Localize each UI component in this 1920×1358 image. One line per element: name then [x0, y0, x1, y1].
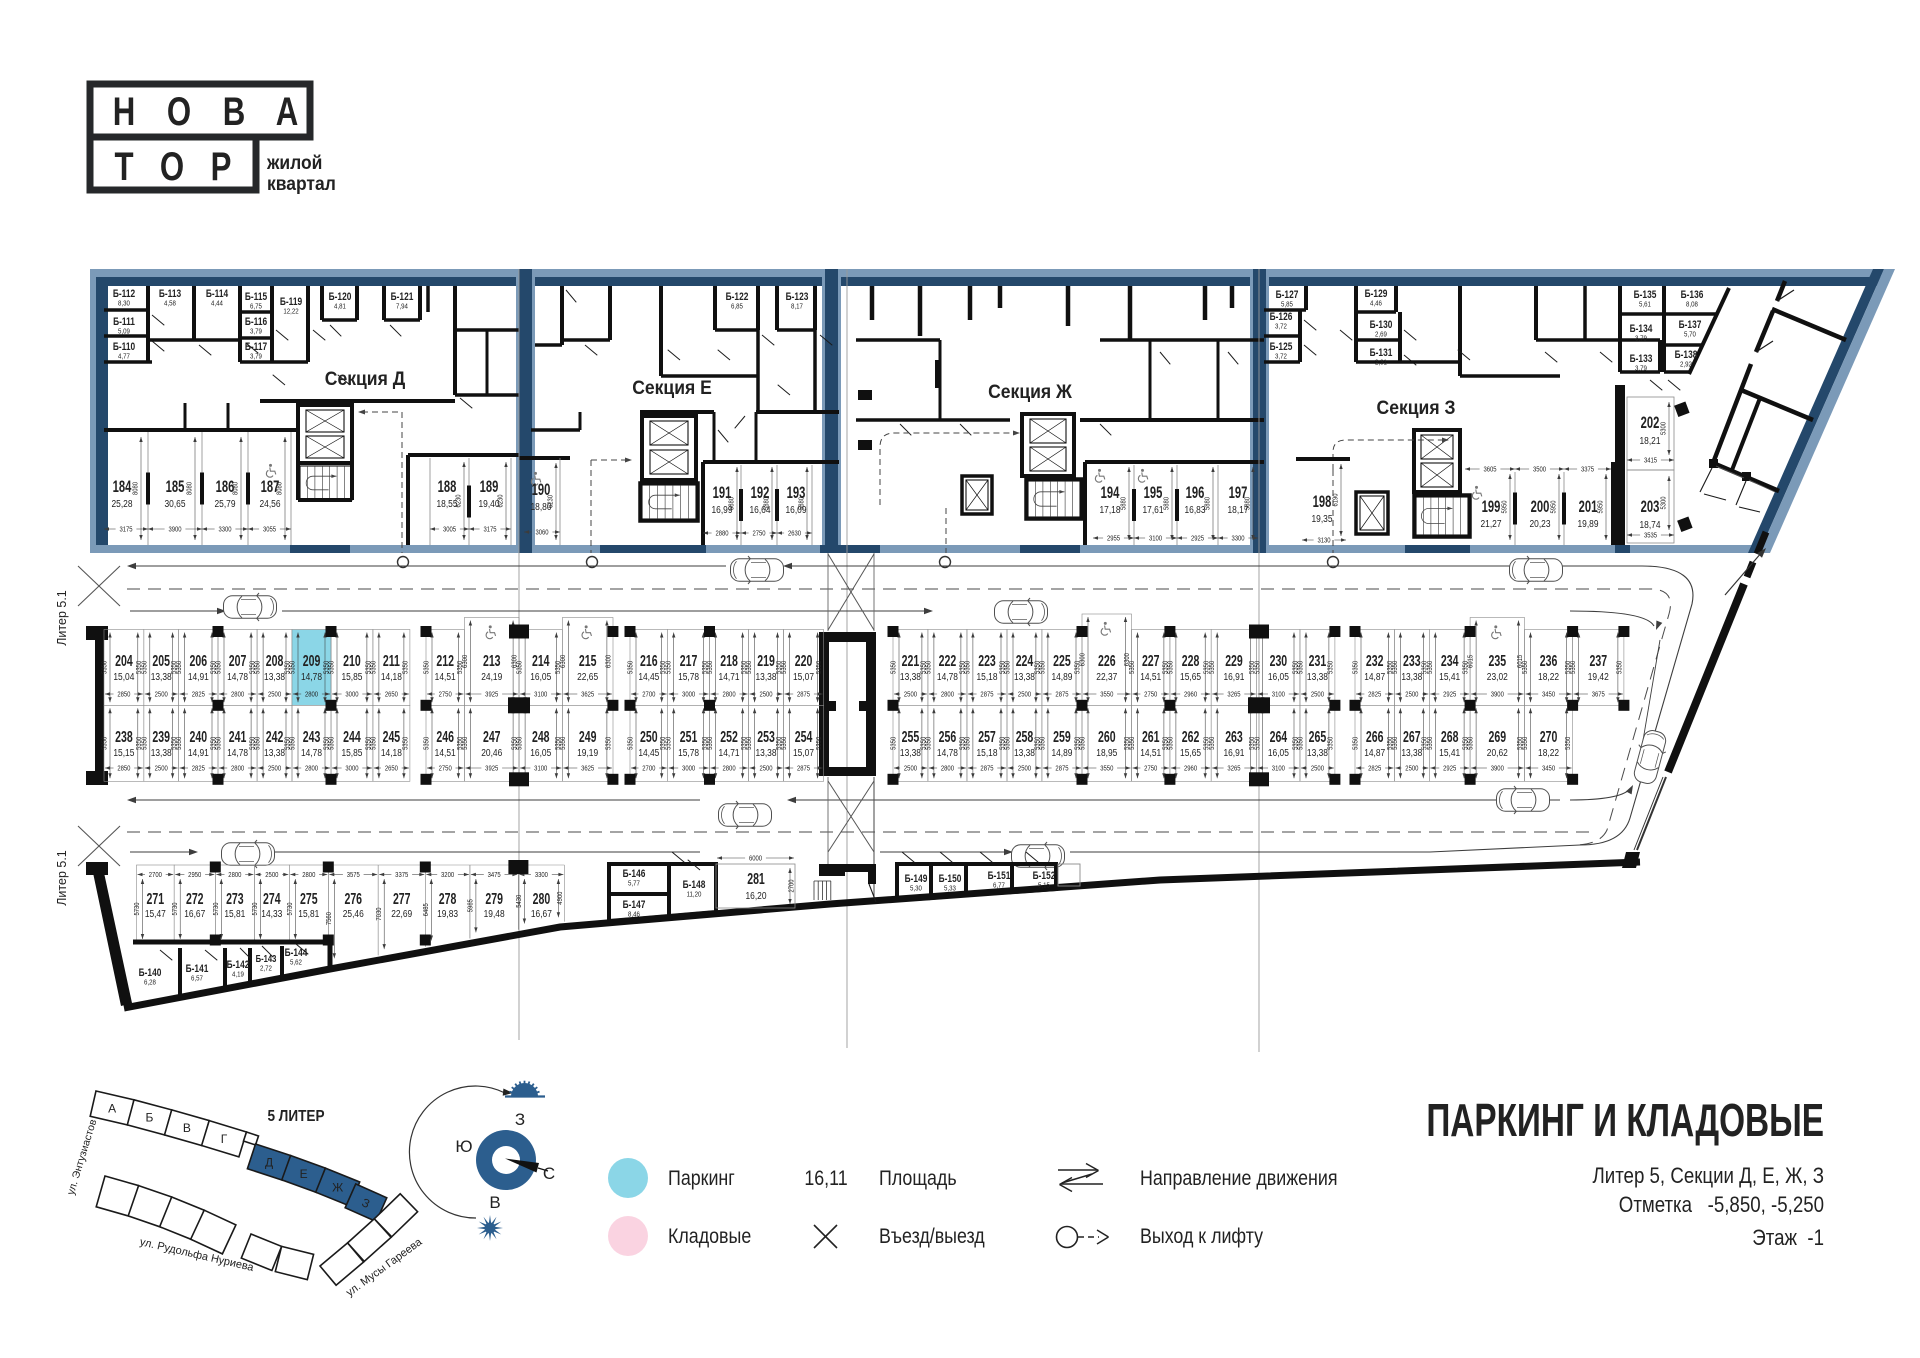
- svg-text:5350: 5350: [328, 661, 336, 674]
- svg-text:8080: 8080: [132, 482, 140, 495]
- svg-text:Ж: Ж: [332, 1180, 343, 1194]
- svg-text:2650: 2650: [385, 765, 398, 773]
- svg-text:254: 254: [795, 728, 813, 746]
- svg-text:Кладовые: Кладовые: [668, 1225, 751, 1249]
- svg-text:5350: 5350: [1522, 661, 1530, 674]
- svg-text:13,38: 13,38: [264, 671, 285, 683]
- svg-text:3550: 3550: [1100, 691, 1113, 699]
- svg-text:239: 239: [152, 728, 170, 746]
- svg-text:16,67: 16,67: [531, 908, 552, 920]
- svg-text:21,27: 21,27: [1480, 518, 1501, 530]
- svg-text:15,07: 15,07: [793, 671, 814, 683]
- svg-text:8,46: 8,46: [628, 911, 640, 919]
- svg-text:6,28: 6,28: [144, 979, 156, 987]
- svg-text:5350: 5350: [141, 736, 149, 749]
- svg-text:Б-114: Б-114: [206, 288, 229, 300]
- svg-text:3675: 3675: [1592, 691, 1605, 699]
- svg-text:3100: 3100: [1272, 765, 1285, 773]
- svg-text:16,91: 16,91: [1223, 747, 1244, 759]
- svg-text:189: 189: [480, 478, 499, 497]
- svg-text:14,89: 14,89: [1051, 671, 1072, 683]
- svg-text:5350: 5350: [254, 736, 262, 749]
- svg-text:240: 240: [190, 728, 208, 746]
- svg-text:228: 228: [1182, 652, 1200, 670]
- svg-text:194: 194: [1101, 484, 1120, 503]
- svg-text:248: 248: [532, 728, 550, 746]
- svg-text:256: 256: [939, 728, 957, 746]
- svg-text:22,65: 22,65: [577, 671, 598, 683]
- svg-text:2875: 2875: [797, 765, 810, 773]
- svg-text:15,85: 15,85: [341, 747, 362, 759]
- svg-text:16,83: 16,83: [1184, 504, 1205, 516]
- svg-text:Площадь: Площадь: [879, 1167, 957, 1191]
- svg-text:2955: 2955: [1107, 535, 1120, 543]
- svg-text:16,11: 16,11: [804, 1167, 847, 1191]
- svg-text:Р: Р: [211, 144, 232, 189]
- svg-text:Литер 5.1: Литер 5.1: [55, 590, 69, 646]
- svg-text:Б-131: Б-131: [1370, 347, 1393, 359]
- svg-text:Б-150: Б-150: [939, 873, 962, 885]
- svg-text:14,89: 14,89: [1051, 747, 1072, 759]
- svg-text:3475: 3475: [488, 872, 501, 880]
- svg-text:Д: Д: [265, 1155, 273, 1169]
- svg-text:5350: 5350: [890, 736, 898, 749]
- svg-text:15,07: 15,07: [793, 747, 814, 759]
- svg-text:208: 208: [266, 652, 284, 670]
- svg-text:19,35: 19,35: [1311, 513, 1332, 525]
- svg-text:2,69: 2,69: [1375, 331, 1387, 339]
- svg-text:Т: Т: [114, 144, 133, 189]
- svg-text:195: 195: [1144, 484, 1163, 503]
- svg-text:223: 223: [978, 652, 996, 670]
- svg-text:5,61: 5,61: [1639, 301, 1651, 309]
- svg-text:12,22: 12,22: [283, 308, 299, 316]
- svg-text:246: 246: [436, 728, 454, 746]
- svg-text:279: 279: [485, 890, 503, 908]
- svg-text:220: 220: [795, 652, 813, 670]
- svg-text:243: 243: [303, 728, 321, 746]
- svg-text:14,78: 14,78: [937, 671, 958, 683]
- svg-text:2500: 2500: [1311, 691, 1324, 699]
- svg-text:14,78: 14,78: [301, 747, 322, 759]
- svg-text:274: 274: [263, 890, 281, 908]
- svg-text:5350: 5350: [665, 736, 673, 749]
- svg-text:2875: 2875: [1055, 691, 1068, 699]
- svg-text:14,91: 14,91: [188, 747, 209, 759]
- svg-text:14,18: 14,18: [381, 671, 402, 683]
- svg-text:2960: 2960: [1184, 691, 1197, 699]
- svg-text:Б-142: Б-142: [227, 959, 250, 971]
- svg-text:6000: 6000: [749, 855, 762, 863]
- svg-text:5880: 5880: [798, 497, 806, 510]
- svg-text:241: 241: [229, 728, 247, 746]
- svg-text:247: 247: [483, 728, 501, 746]
- svg-text:216: 216: [640, 652, 658, 670]
- svg-text:Б-151: Б-151: [988, 870, 1011, 882]
- svg-text:15,41: 15,41: [1439, 747, 1460, 759]
- svg-text:14,51: 14,51: [1140, 671, 1161, 683]
- svg-text:5350: 5350: [1297, 736, 1305, 749]
- svg-text:2925: 2925: [1443, 691, 1456, 699]
- svg-text:5350: 5350: [1254, 661, 1262, 674]
- svg-text:13,38: 13,38: [1014, 747, 1035, 759]
- svg-text:Отметка -5,850, -5,250: Отметка -5,850, -5,250: [1619, 1194, 1824, 1218]
- svg-text:5350: 5350: [605, 736, 613, 749]
- svg-text:5350: 5350: [289, 736, 297, 749]
- svg-text:З: З: [515, 1110, 525, 1129]
- svg-text:6300: 6300: [559, 655, 567, 668]
- svg-text:227: 227: [1142, 652, 1160, 670]
- svg-text:13,38: 13,38: [900, 671, 921, 683]
- svg-text:Б-119: Б-119: [280, 296, 303, 308]
- svg-text:Б-140: Б-140: [139, 967, 162, 979]
- svg-text:13,38: 13,38: [264, 747, 285, 759]
- svg-text:6300: 6300: [1079, 653, 1087, 666]
- svg-text:2750: 2750: [439, 691, 452, 699]
- svg-text:5350: 5350: [1039, 661, 1047, 674]
- svg-text:6230: 6230: [547, 495, 555, 508]
- svg-text:5950: 5950: [1597, 500, 1605, 513]
- svg-text:Е: Е: [300, 1167, 308, 1181]
- svg-text:5730: 5730: [134, 902, 142, 915]
- svg-text:232: 232: [1366, 652, 1384, 670]
- svg-text:3,72: 3,72: [1275, 323, 1287, 331]
- svg-text:15,18: 15,18: [976, 671, 997, 683]
- svg-text:200: 200: [1531, 498, 1550, 517]
- svg-text:2800: 2800: [941, 691, 954, 699]
- svg-text:5880: 5880: [728, 497, 736, 510]
- svg-text:Б-116: Б-116: [245, 316, 268, 328]
- svg-text:15,81: 15,81: [224, 908, 245, 920]
- svg-text:236: 236: [1540, 652, 1558, 670]
- svg-text:5730: 5730: [212, 902, 220, 915]
- svg-text:188: 188: [438, 478, 457, 497]
- svg-text:4,46: 4,46: [1370, 300, 1382, 308]
- svg-text:Б-120: Б-120: [329, 291, 352, 303]
- svg-text:4,44: 4,44: [211, 300, 223, 308]
- svg-text:2700: 2700: [788, 879, 796, 892]
- svg-text:230: 230: [1270, 652, 1288, 670]
- svg-text:А: А: [276, 89, 299, 134]
- svg-text:5350: 5350: [1167, 661, 1175, 674]
- svg-text:ПАРКИНГ И КЛАДОВЫЕ: ПАРКИНГ И КЛАДОВЫЕ: [1426, 1095, 1824, 1147]
- svg-text:14,33: 14,33: [261, 908, 282, 920]
- svg-text:238: 238: [115, 728, 133, 746]
- svg-text:13,38: 13,38: [756, 747, 777, 759]
- svg-text:Б-130: Б-130: [1370, 319, 1393, 331]
- svg-text:257: 257: [978, 728, 996, 746]
- svg-text:11,20: 11,20: [687, 891, 702, 899]
- svg-text:Б-138: Б-138: [1675, 349, 1698, 361]
- svg-text:2925: 2925: [1191, 535, 1204, 543]
- svg-text:8,30: 8,30: [118, 300, 130, 308]
- svg-text:Б-143: Б-143: [256, 953, 277, 964]
- svg-text:252: 252: [720, 728, 738, 746]
- svg-text:18,22: 18,22: [1538, 671, 1559, 683]
- svg-text:5350: 5350: [1565, 736, 1573, 749]
- svg-text:16,20: 16,20: [745, 890, 766, 902]
- svg-text:2800: 2800: [302, 872, 315, 880]
- svg-text:5350: 5350: [423, 661, 431, 674]
- svg-text:2500: 2500: [904, 691, 917, 699]
- svg-text:С: С: [543, 1164, 555, 1183]
- svg-text:5350: 5350: [215, 736, 223, 749]
- svg-text:5300: 5300: [1660, 496, 1668, 509]
- svg-text:2750: 2750: [752, 530, 765, 538]
- svg-text:Секция Д: Секция Д: [325, 367, 405, 389]
- svg-text:5350: 5350: [402, 661, 410, 674]
- svg-text:265: 265: [1309, 728, 1327, 746]
- svg-text:2500: 2500: [265, 872, 278, 880]
- svg-text:7560: 7560: [325, 912, 333, 925]
- svg-text:3375: 3375: [395, 872, 408, 880]
- svg-text:244: 244: [343, 728, 361, 746]
- svg-text:3000: 3000: [345, 691, 358, 699]
- svg-text:3000: 3000: [682, 691, 695, 699]
- svg-text:5350: 5350: [1167, 736, 1175, 749]
- svg-text:5300: 5300: [1660, 422, 1668, 435]
- svg-text:15,81: 15,81: [298, 908, 319, 920]
- svg-text:5350: 5350: [1522, 736, 1530, 749]
- svg-text:5350: 5350: [1352, 661, 1360, 674]
- svg-text:2800: 2800: [305, 691, 318, 699]
- svg-text:15,41: 15,41: [1439, 671, 1460, 683]
- svg-text:Б-122: Б-122: [726, 291, 749, 303]
- svg-text:15,15: 15,15: [113, 747, 134, 759]
- svg-text:5350: 5350: [254, 661, 262, 674]
- svg-text:5350: 5350: [1004, 736, 1012, 749]
- svg-text:226: 226: [1098, 652, 1116, 670]
- svg-text:Б-133: Б-133: [1630, 353, 1653, 365]
- svg-text:3130: 3130: [1317, 537, 1330, 545]
- svg-text:15,65: 15,65: [1180, 747, 1201, 759]
- svg-text:237: 237: [1589, 652, 1607, 670]
- svg-text:6,85: 6,85: [731, 303, 743, 311]
- svg-text:5350: 5350: [423, 736, 431, 749]
- svg-text:2850: 2850: [117, 691, 130, 699]
- svg-text:2700: 2700: [149, 872, 162, 880]
- svg-text:5350: 5350: [1208, 736, 1216, 749]
- svg-text:5350: 5350: [1079, 736, 1087, 749]
- svg-text:Секция Ж: Секция Ж: [988, 380, 1072, 402]
- svg-text:13,38: 13,38: [1307, 747, 1328, 759]
- svg-text:5730: 5730: [286, 902, 294, 915]
- svg-text:211: 211: [383, 652, 400, 670]
- svg-text:14,45: 14,45: [638, 747, 659, 759]
- svg-text:5950: 5950: [1550, 500, 1558, 513]
- svg-text:5350: 5350: [1129, 736, 1137, 749]
- svg-text:3,72: 3,72: [1275, 353, 1287, 361]
- svg-text:199: 199: [1482, 498, 1501, 517]
- svg-text:2875: 2875: [1055, 765, 1068, 773]
- svg-text:2650: 2650: [385, 691, 398, 699]
- svg-text:13,38: 13,38: [1014, 671, 1035, 683]
- svg-text:2800: 2800: [722, 765, 735, 773]
- svg-text:5350: 5350: [964, 736, 972, 749]
- svg-text:271: 271: [147, 890, 165, 908]
- svg-text:209: 209: [303, 652, 321, 670]
- svg-text:8,08: 8,08: [1686, 301, 1698, 309]
- svg-text:198: 198: [1313, 493, 1332, 512]
- svg-text:Б-137: Б-137: [1679, 319, 1702, 331]
- svg-text:13,38: 13,38: [756, 671, 777, 683]
- svg-text:213: 213: [483, 652, 501, 670]
- svg-text:5350: 5350: [815, 661, 823, 674]
- svg-text:Б-152: Б-152: [1033, 870, 1056, 882]
- svg-text:5,33: 5,33: [944, 885, 956, 893]
- svg-text:5350: 5350: [1392, 736, 1400, 749]
- svg-text:Въезд/выезд: Въезд/выезд: [879, 1225, 985, 1249]
- svg-text:5350: 5350: [176, 661, 184, 674]
- svg-text:14,78: 14,78: [227, 671, 248, 683]
- svg-text:19,19: 19,19: [577, 747, 598, 759]
- svg-text:Г: Г: [221, 1132, 228, 1146]
- svg-text:5350: 5350: [1392, 661, 1400, 674]
- svg-text:5350: 5350: [289, 661, 297, 674]
- svg-text:24,19: 24,19: [481, 671, 502, 683]
- svg-text:2750: 2750: [439, 765, 452, 773]
- svg-text:Б-141: Б-141: [186, 963, 209, 975]
- svg-text:Б-136: Б-136: [1681, 289, 1704, 301]
- svg-text:184: 184: [113, 478, 132, 497]
- svg-text:6230: 6230: [455, 494, 463, 507]
- svg-text:20,46: 20,46: [481, 747, 502, 759]
- svg-text:5350: 5350: [176, 736, 184, 749]
- svg-text:Б-115: Б-115: [245, 291, 268, 303]
- svg-text:19,89: 19,89: [1577, 518, 1598, 530]
- svg-text:242: 242: [266, 728, 284, 746]
- svg-text:2700: 2700: [642, 691, 655, 699]
- svg-text:4900: 4900: [556, 891, 564, 904]
- svg-text:В: В: [489, 1193, 500, 1212]
- svg-text:5350: 5350: [1352, 736, 1360, 749]
- svg-text:18,22: 18,22: [1538, 747, 1559, 759]
- svg-text:5880: 5880: [1163, 497, 1171, 510]
- svg-text:202: 202: [1641, 414, 1660, 433]
- svg-text:5350: 5350: [707, 661, 715, 674]
- svg-text:23,02: 23,02: [1487, 671, 1508, 683]
- svg-text:260: 260: [1098, 728, 1116, 746]
- svg-text:18,21: 18,21: [1639, 435, 1660, 447]
- svg-text:6,77: 6,77: [993, 882, 1005, 890]
- svg-text:2850: 2850: [117, 765, 130, 773]
- svg-text:2825: 2825: [1368, 765, 1381, 773]
- svg-text:2800: 2800: [722, 691, 735, 699]
- svg-text:15,78: 15,78: [678, 747, 699, 759]
- svg-text:Б-148: Б-148: [683, 879, 706, 891]
- svg-text:16,05: 16,05: [1268, 671, 1289, 683]
- svg-text:2500: 2500: [1018, 765, 1031, 773]
- svg-text:269: 269: [1488, 728, 1506, 746]
- svg-text:272: 272: [186, 890, 204, 908]
- svg-text:5950: 5950: [1501, 500, 1509, 513]
- svg-text:14,51: 14,51: [1140, 747, 1161, 759]
- svg-text:15,47: 15,47: [145, 908, 166, 920]
- svg-text:18,95: 18,95: [1096, 747, 1117, 759]
- svg-text:3265: 3265: [1227, 691, 1240, 699]
- svg-text:5350: 5350: [1570, 661, 1578, 674]
- svg-text:Секция З: Секция З: [1377, 396, 1456, 418]
- svg-text:20,62: 20,62: [1487, 747, 1508, 759]
- svg-text:3300: 3300: [218, 526, 231, 534]
- svg-text:2750: 2750: [1144, 765, 1157, 773]
- svg-text:14,71: 14,71: [719, 747, 740, 759]
- svg-text:20,23: 20,23: [1529, 518, 1550, 530]
- svg-text:3900: 3900: [1491, 765, 1504, 773]
- svg-text:Б-126: Б-126: [1270, 311, 1293, 323]
- svg-text:205: 205: [152, 652, 170, 670]
- svg-text:3005: 3005: [443, 526, 456, 534]
- svg-text:3,79: 3,79: [1635, 365, 1647, 373]
- svg-text:Б-135: Б-135: [1634, 289, 1657, 301]
- svg-text:3100: 3100: [1149, 535, 1162, 543]
- svg-text:250: 250: [640, 728, 658, 746]
- svg-text:14,91: 14,91: [188, 671, 209, 683]
- svg-text:8080: 8080: [232, 482, 240, 495]
- svg-text:Н: Н: [113, 89, 136, 134]
- svg-text:5350: 5350: [627, 661, 635, 674]
- svg-text:13,38: 13,38: [1401, 671, 1422, 683]
- svg-text:231: 231: [1309, 652, 1327, 670]
- svg-text:6300: 6300: [461, 655, 469, 668]
- svg-text:2950: 2950: [188, 872, 201, 880]
- svg-text:13,38: 13,38: [151, 671, 172, 683]
- svg-text:222: 222: [939, 652, 957, 670]
- svg-text:14,78: 14,78: [227, 747, 248, 759]
- svg-text:19,48: 19,48: [484, 908, 505, 920]
- svg-text:5350: 5350: [559, 736, 567, 749]
- svg-text:5350: 5350: [215, 661, 223, 674]
- svg-text:3550: 3550: [1100, 765, 1113, 773]
- svg-text:Б-112: Б-112: [113, 288, 136, 300]
- svg-text:Этаж -1: Этаж -1: [1752, 1227, 1824, 1251]
- svg-text:2500: 2500: [155, 765, 168, 773]
- svg-text:16,05: 16,05: [1268, 747, 1289, 759]
- svg-text:5350: 5350: [890, 661, 898, 674]
- svg-text:3625: 3625: [581, 691, 594, 699]
- svg-text:281: 281: [747, 870, 765, 888]
- svg-text:5350: 5350: [1254, 736, 1262, 749]
- svg-text:5985: 5985: [467, 899, 475, 912]
- svg-text:О: О: [160, 144, 184, 189]
- svg-text:4,19: 4,19: [232, 971, 244, 979]
- svg-text:14,71: 14,71: [719, 671, 740, 683]
- svg-text:Б-111: Б-111: [113, 316, 135, 328]
- svg-text:Литер 5, Секции Д, Е, Ж, З: Литер 5, Секции Д, Е, Ж, З: [1593, 1165, 1824, 1189]
- svg-text:3500: 3500: [1533, 466, 1546, 474]
- svg-text:266: 266: [1366, 728, 1384, 746]
- svg-text:3925: 3925: [485, 765, 498, 773]
- svg-text:2925: 2925: [1443, 765, 1456, 773]
- svg-text:О: О: [167, 89, 191, 134]
- svg-text:3575: 3575: [347, 872, 360, 880]
- svg-text:5430: 5430: [516, 894, 524, 907]
- svg-text:255: 255: [902, 728, 920, 746]
- svg-text:263: 263: [1225, 728, 1243, 746]
- svg-text:259: 259: [1053, 728, 1071, 746]
- svg-text:5,62: 5,62: [290, 959, 302, 967]
- svg-text:2960: 2960: [1184, 765, 1197, 773]
- svg-text:3535: 3535: [1644, 532, 1657, 540]
- svg-text:14,78: 14,78: [937, 747, 958, 759]
- svg-text:5730: 5730: [252, 902, 260, 915]
- svg-text:249: 249: [579, 728, 597, 746]
- svg-text:18,74: 18,74: [1639, 519, 1660, 531]
- svg-text:217: 217: [680, 652, 698, 670]
- svg-text:5350: 5350: [1426, 736, 1434, 749]
- svg-text:3450: 3450: [1542, 691, 1555, 699]
- svg-text:5350: 5350: [101, 736, 109, 749]
